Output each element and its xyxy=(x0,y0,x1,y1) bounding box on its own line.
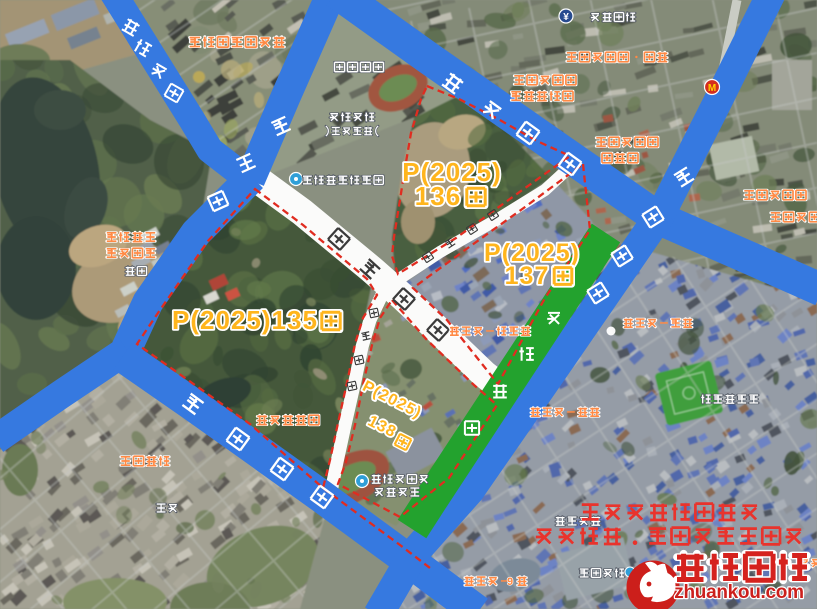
svg-text:¥: ¥ xyxy=(563,12,569,23)
svg-text:M: M xyxy=(708,83,716,94)
svg-text:9: 9 xyxy=(507,576,513,588)
svg-text:P(2025)135: P(2025)135 xyxy=(172,305,318,335)
svg-text:zhuankou.com: zhuankou.com xyxy=(674,582,803,603)
svg-text:137: 137 xyxy=(505,262,550,290)
svg-text:136: 136 xyxy=(415,181,461,211)
